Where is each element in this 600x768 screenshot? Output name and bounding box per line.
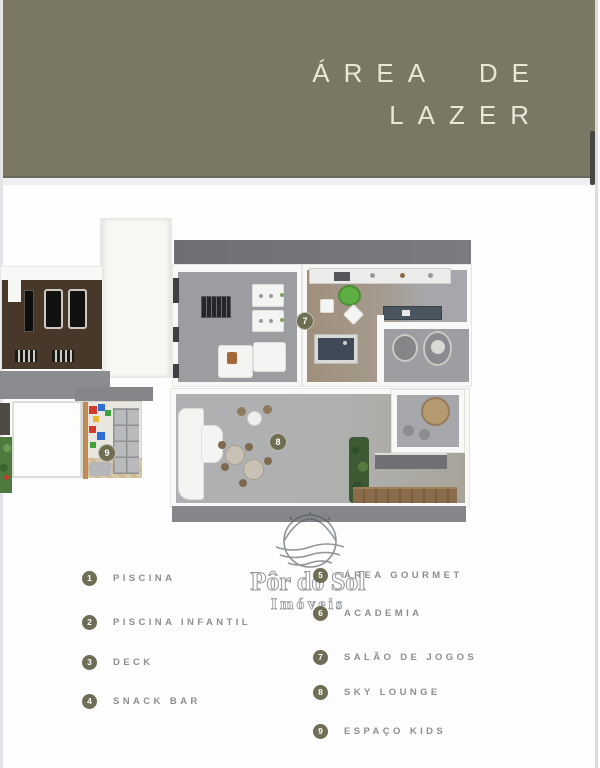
- dining-table: [225, 445, 245, 465]
- plan-badge-7: 7: [296, 312, 314, 330]
- title-banner: ÁREA DE LAZER: [3, 0, 595, 178]
- legend-item: 7 SALÃO DE JOGOS: [313, 649, 477, 665]
- legend-label: ÁREA GOURMET: [344, 570, 463, 581]
- treadmill: [68, 289, 87, 329]
- legend-item: 6 ACADEMIA: [313, 605, 422, 621]
- chair: [264, 457, 272, 465]
- lounge-sofa: [253, 342, 286, 372]
- legend-item: 4 SNACK BAR: [82, 693, 201, 709]
- toy-block: [93, 416, 99, 422]
- stool: [403, 425, 414, 436]
- tower-block: [100, 218, 172, 378]
- round-lounge-chair: [423, 331, 452, 366]
- legend-badge: 8: [313, 685, 328, 700]
- legend-item: 2 PISCINA INFANTIL: [82, 614, 251, 630]
- legend-badge: 9: [313, 724, 328, 739]
- gourmet-room: [302, 264, 472, 387]
- toy-block: [105, 410, 111, 416]
- window-strip: [173, 278, 179, 303]
- floor-plan: 7 8 9 Pôr do Sol Imóveis: [0, 185, 595, 555]
- stool: [419, 429, 430, 440]
- page-right-edge: [595, 0, 598, 768]
- legend-item: 8 SKY LOUNGE: [313, 684, 441, 700]
- chair: [245, 443, 253, 451]
- legend-item: 5 ÁREA GOURMET: [313, 567, 463, 583]
- dumbbell-rack: [15, 350, 37, 362]
- plan-badge-8: 8: [269, 433, 287, 451]
- plan-badge-9: 9: [98, 444, 116, 462]
- legend-badge: 7: [313, 650, 328, 665]
- planter-green: [0, 437, 12, 493]
- legend-label: SALÃO DE JOGOS: [344, 652, 477, 663]
- window-strip: [173, 364, 179, 378]
- legend-item: 9 ESPAÇO KIDS: [313, 723, 446, 739]
- legend-label: ACADEMIA: [344, 608, 422, 619]
- bar-counter: [383, 306, 442, 320]
- legend-label: ESPAÇO KIDS: [344, 726, 446, 737]
- legend-label: SKY LOUNGE: [344, 687, 441, 698]
- legend-label: PISCINA INFANTIL: [113, 617, 251, 628]
- legend-item: 1 PISCINA: [82, 570, 175, 586]
- snack-table: [252, 310, 284, 332]
- pool-table: [314, 334, 358, 364]
- gym-room: [2, 280, 104, 369]
- toy-block: [89, 406, 97, 414]
- window-strip: [173, 327, 179, 342]
- white-room: [12, 401, 82, 478]
- toy-block: [89, 426, 96, 433]
- banner-divider: [3, 178, 595, 185]
- snack-table: [252, 284, 284, 307]
- kids-room: [82, 401, 142, 478]
- title-line-2: LAZER: [312, 94, 543, 136]
- scrollbar-mark: [590, 131, 595, 185]
- legend-label: SNACK BAR: [113, 696, 201, 707]
- chair: [263, 405, 272, 414]
- legend-badge: 5: [313, 568, 328, 583]
- cafe-table: [247, 411, 262, 426]
- legend-label: DECK: [113, 657, 154, 668]
- toy-block: [90, 442, 96, 448]
- treadmill: [44, 289, 63, 329]
- lounge-sofa: [218, 345, 253, 378]
- sky-lounge-room: [170, 388, 470, 508]
- legend-badge: 6: [313, 606, 328, 621]
- legend-badge: 2: [82, 615, 97, 630]
- legend-badge: 3: [82, 655, 97, 670]
- kids-mat: [89, 462, 111, 476]
- cube-seat: [320, 299, 334, 313]
- legend-label: PISCINA: [113, 573, 175, 584]
- gym-top-wall: [0, 266, 103, 281]
- round-lounge-chair: [392, 334, 418, 362]
- kitchen-counter: [309, 268, 451, 284]
- dining-table: [243, 459, 264, 480]
- chair: [239, 479, 247, 487]
- game-room: [172, 264, 302, 387]
- page-title: ÁREA DE LAZER: [312, 52, 543, 136]
- title-line-1: ÁREA DE: [312, 52, 543, 94]
- chair: [218, 441, 226, 449]
- kitchen-counter-lower: [375, 453, 447, 469]
- weight-machine: [24, 290, 34, 332]
- green-table: [338, 285, 361, 306]
- chair: [237, 407, 246, 416]
- foosball-table: [201, 296, 231, 318]
- kids-shelf-grid: [113, 408, 139, 474]
- toy-block: [97, 432, 105, 440]
- legend-badge: 4: [82, 694, 97, 709]
- gym-door: [8, 280, 21, 302]
- toy-block: [98, 404, 105, 411]
- wood-bar: [353, 487, 457, 503]
- round-table: [421, 397, 450, 426]
- legend-badge: 1: [82, 571, 97, 586]
- roof-band-bottom: [172, 506, 466, 522]
- chair: [221, 463, 229, 471]
- roof-band-top: [174, 240, 471, 266]
- flyer-page: ÁREA DE LAZER: [0, 0, 600, 768]
- alcove-wall-h: [377, 322, 469, 329]
- roof-band-kids: [75, 387, 153, 401]
- planter-dark: [0, 403, 10, 435]
- legend-item: 3 DECK: [82, 654, 154, 670]
- dumbbell-rack: [52, 350, 74, 362]
